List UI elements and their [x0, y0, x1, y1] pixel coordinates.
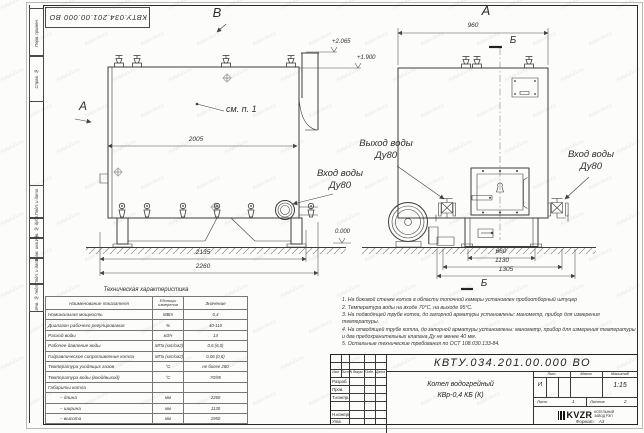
product-name-line2: КВр-0,4 КБ (К) — [387, 391, 534, 402]
title-block: КВТУ.034.201.00.000 ВО Изм. Лист N докум… — [330, 354, 638, 425]
dim-660-text: 660 — [471, 249, 531, 256]
view-a-direction-arrow — [75, 119, 91, 122]
format-value: А3 — [599, 419, 605, 424]
title-block-doc-number: КВТУ.034.201.00.000 ВО — [386, 355, 638, 372]
table-row: Температура уходящих газов°Сне более 280 — [46, 361, 248, 371]
front-top-valves — [462, 57, 534, 69]
scale-header: Масштаб — [602, 372, 638, 376]
view-b-direction-arrow — [217, 24, 226, 32]
view-arrow-label: А — [74, 100, 92, 112]
ash-hopper-outline — [128, 218, 291, 241]
spec-header-name: Наименование показателя — [46, 297, 153, 310]
spec-header-units: Единицы измерения — [153, 297, 184, 310]
view-b-label: В — [205, 6, 229, 19]
spec-header-value: Значение — [184, 297, 248, 310]
note-3: 3. На подводящей трубе котла, до запорно… — [342, 312, 636, 326]
table-row: – ширинамм1130 — [46, 403, 248, 413]
table-row: Диапазон рабочего регулирования%40-110 — [46, 320, 248, 330]
blower-fan — [389, 203, 455, 248]
boiler-side-view — [75, 24, 361, 276]
table-row: Гидравлическое сопротивление котлаМПа (к… — [46, 351, 248, 361]
table-row: Рабочее давление водыМПа (кгс/см2)0,6 (6… — [46, 341, 248, 351]
sig-row-utv: Утв. — [332, 419, 349, 424]
dim-2005-text: 2005 — [166, 137, 226, 144]
dim-1130-text: 1130 — [472, 258, 532, 265]
section-b-bottom-label: Б — [475, 279, 493, 289]
lit-value: И — [534, 382, 546, 388]
dimension-960 — [398, 28, 548, 65]
side-bottom-valves — [119, 203, 254, 217]
mass-header: Масса — [570, 372, 602, 376]
table-row: – высотамм1950 — [46, 413, 248, 423]
spec-table-title: Техническая характеристика — [45, 287, 247, 293]
dim-2260-text: 2260 — [173, 264, 233, 271]
rev-col-data: Дата — [375, 370, 386, 374]
section-b-top-label: Б — [504, 36, 522, 46]
rev-col-dokum: N докум. — [349, 370, 364, 374]
note-2: 2. Температура воды на входе 70°С, на вы… — [342, 305, 636, 312]
sheets-label: Листов — [590, 399, 614, 404]
engineering-drawing-sheet: { "watermark": "kotel-kv.ru", "frame": {… — [0, 0, 644, 430]
note-4: 4. На отводящей трубе котла, до запорной… — [342, 327, 636, 341]
inlet-a-leader — [565, 177, 589, 199]
rev-col-izm: Изм. — [331, 370, 341, 374]
side-stub-valve — [299, 203, 318, 217]
boiler-base — [462, 218, 542, 247]
rev-col-podp: Подп. — [364, 370, 375, 374]
table-row: Расход водым3/ч14 — [46, 330, 248, 340]
spec-table: Наименование показателя Единицы измерени… — [45, 296, 248, 424]
dim-1305-text: 1305 — [476, 267, 536, 274]
sig-row-tkontr: Т.контр. — [332, 395, 349, 400]
sig-row-nkontr: Н.контр. — [332, 412, 349, 417]
sheets-value: 2 — [624, 399, 634, 404]
dim-960-text: 960 — [443, 23, 503, 30]
lit-header: Лит. — [534, 372, 570, 376]
nameplate — [512, 78, 538, 97]
chimney-outlet — [299, 53, 319, 130]
elevation-mid-text: +1.900 — [357, 55, 397, 61]
table-row: Температура воды (вход/выход)°С70/95 — [46, 372, 248, 382]
product-name-cell: Котел водогрейный КВр-0,4 КБ (К) — [386, 371, 534, 433]
inlet-b-label-line1: Вход воды — [306, 169, 374, 179]
inlet-a-label-line1: Вход воды — [558, 150, 624, 160]
side-nozzle-tab — [100, 174, 108, 183]
water-inlet-flange — [276, 201, 295, 220]
table-row: Номинальная мощностьМВт0,4 — [46, 310, 248, 320]
table-row: Габариты котла — [46, 382, 248, 392]
sig-row-razrab: Разраб. — [332, 379, 349, 384]
see-note-leader — [196, 103, 224, 111]
rev-col-list: Лист — [341, 370, 349, 374]
inlet-b-label-line2: Ду80 — [306, 181, 374, 191]
note-5: 5. Остальные технические требования по О… — [342, 341, 636, 348]
technical-notes: 1. На боковой стенке котла в области топ… — [342, 297, 636, 349]
sheet-value: 1 — [572, 399, 582, 404]
outlet-label-line2: Ду80 — [350, 151, 422, 161]
side-top-valves — [115, 56, 296, 68]
format-label: Формат — [576, 419, 594, 424]
inlet-pipe-fitting — [548, 199, 568, 222]
elevation-zero-text: 0.000 — [335, 229, 375, 235]
table-row: – длинамм2260 — [46, 393, 248, 403]
inlet-a-label-line2: Ду80 — [558, 162, 624, 172]
sheet-label: Лист — [537, 399, 557, 404]
note-1: 1. На боковой стенке котла в области топ… — [342, 297, 636, 304]
outlet-label-line1: Выход воды — [350, 139, 422, 149]
product-name-line1: Котел водогрейный — [387, 380, 534, 391]
door-handle — [472, 196, 492, 201]
view-a-label: А — [474, 4, 498, 17]
sig-row-prov: Пров. — [332, 387, 349, 392]
see-note-label: см. п. 1 — [226, 105, 280, 114]
format-note: Формат А3 — [545, 419, 635, 424]
scale-value: 1:15 — [602, 382, 638, 389]
outlet-leader — [397, 166, 444, 199]
elevation-top-text: +2.065 — [332, 39, 372, 45]
dim-2135-text: 2135 — [173, 250, 233, 257]
